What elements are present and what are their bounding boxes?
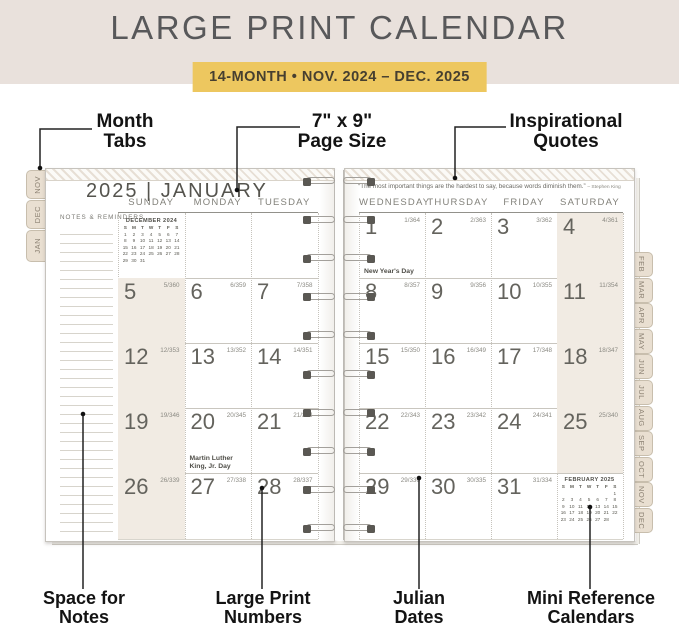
julian-date: 15/350 [401, 347, 420, 354]
date-number: 13 [191, 344, 215, 370]
grid-row-line [359, 539, 623, 540]
julian-date: 12/353 [160, 347, 179, 354]
callout-julian-dates: Julian Dates [349, 589, 489, 627]
calendar-cell: 2121/344 [251, 408, 318, 473]
note-line [60, 288, 113, 289]
note-line [60, 270, 113, 271]
julian-date: 31/334 [533, 477, 552, 484]
note-line [60, 495, 113, 496]
mini-day: 5 [585, 497, 594, 504]
inspirational-quote: “The most important things are the harde… [345, 183, 634, 190]
month-tab-nov: NOV [26, 170, 47, 199]
calendar-cell: 99/356 [425, 278, 491, 343]
note-line [60, 414, 113, 415]
note-line [60, 306, 113, 307]
month-tab-label: MAR [637, 281, 646, 299]
spiral-loop [303, 447, 375, 456]
subtitle-banner: 14-MONTH • NOV. 2024 – DEC. 2025 [192, 62, 487, 92]
mini-day: 12 [585, 504, 594, 511]
spiral-clip [303, 371, 311, 379]
mini-calendar-title: DECEMBER 2024 [121, 218, 182, 224]
note-line [60, 333, 113, 334]
calendar-cell: 55/360 [118, 278, 185, 343]
callout-text-line: Julian [349, 589, 489, 608]
julian-date: 17/348 [533, 347, 552, 354]
mini-day [593, 491, 602, 498]
callout-large-print-numbers: Large Print Numbers [183, 589, 343, 627]
mini-day-letter: S [121, 225, 130, 232]
spiral-clip [303, 486, 311, 494]
mini-day: 6 [164, 232, 173, 239]
mini-day: 13 [164, 238, 173, 245]
julian-date: 28/337 [293, 477, 312, 484]
julian-date: 8/357 [404, 282, 420, 289]
date-number: 28 [257, 474, 281, 500]
callout-text-line: Calendars [506, 608, 676, 627]
mini-day: 25 [576, 517, 585, 524]
date-number: 18 [563, 344, 587, 370]
mini-day: 18 [576, 510, 585, 517]
grid-row-line [118, 539, 318, 540]
month-tab-label: DEC [33, 206, 42, 223]
mini-day [585, 491, 594, 498]
mini-day [164, 258, 173, 265]
mini-day: 22 [121, 251, 130, 258]
calendar-cell: 2020/345Martin Luther King, Jr. Day [185, 408, 252, 473]
spiral-loop [303, 524, 375, 533]
month-tab-label: NOV [33, 176, 42, 194]
day-header-friday: FRIDAY [491, 197, 557, 208]
calendar-cell: 1111/354 [557, 278, 623, 343]
month-tab-label: AUG [637, 409, 646, 427]
holiday-label: Martin Luther King, Jr. Day [190, 455, 246, 470]
callout-inspirational-quotes: Inspirational Quotes [486, 112, 646, 152]
mini-day: 11 [147, 238, 156, 245]
mini-day: 14 [602, 504, 611, 511]
calendar-cell: 1010/355 [491, 278, 557, 343]
julian-date: 2/363 [470, 217, 486, 224]
calendar-cell: 2323/342 [425, 408, 491, 473]
note-line [60, 486, 113, 487]
note-line [60, 522, 113, 523]
date-number: 14 [257, 344, 281, 370]
spiral-clip [367, 409, 375, 417]
day-header-saturday: SATURDAY [557, 197, 623, 208]
julian-date: 7/358 [297, 282, 313, 289]
mini-day: 3 [568, 497, 577, 504]
note-line [60, 243, 113, 244]
spiral-binding-spine [334, 170, 344, 540]
calendar-cell: 66/359 [185, 278, 252, 343]
date-number: 15 [365, 344, 389, 370]
date-number: 7 [257, 279, 269, 305]
julian-date: 10/355 [533, 282, 552, 289]
mini-day-letter: M [130, 225, 139, 232]
calendar-cell: 1818/347 [557, 343, 623, 408]
mini-day: 15 [611, 504, 620, 511]
note-line [60, 279, 113, 280]
julian-date: 24/341 [533, 412, 552, 419]
note-line [60, 234, 113, 235]
date-number: 31 [497, 474, 521, 500]
spiral-clip [303, 178, 311, 186]
note-line [60, 387, 113, 388]
mini-day-letter: S [559, 484, 568, 491]
mini-day [559, 491, 568, 498]
date-number: 23 [431, 409, 455, 435]
mini-day: 24 [568, 517, 577, 524]
mini-day: 31 [138, 258, 147, 265]
mini-day: 3 [138, 232, 147, 239]
date-number: 20 [191, 409, 215, 435]
mini-day [611, 517, 620, 524]
mini-day-letter: S [173, 225, 182, 232]
calendar-cell: 3131/334 [491, 473, 557, 539]
calendar-cell: 1717/348 [491, 343, 557, 408]
calendar-cell [185, 213, 252, 278]
day-header-tuesday: TUESDAY [251, 197, 318, 208]
month-tab-label: MAY [637, 333, 646, 350]
date-number: 12 [124, 344, 148, 370]
mini-day: 8 [611, 497, 620, 504]
mini-day: 1 [611, 491, 620, 498]
mini-day: 10 [568, 504, 577, 511]
mini-day-letter: T [593, 484, 602, 491]
date-number: 5 [124, 279, 136, 305]
month-tab-label: JUN [637, 359, 646, 375]
julian-date: 9/356 [470, 282, 486, 289]
mini-day: 16 [130, 245, 139, 252]
note-line [60, 369, 113, 370]
note-line [60, 504, 113, 505]
product-title: LARGE PRINT CALENDAR [0, 9, 679, 47]
month-tab-label: JUL [637, 385, 646, 400]
date-number: 24 [497, 409, 521, 435]
note-line [60, 441, 113, 442]
left-page: 2025 | JANUARY NOTES & REMINDERS SUNDAYM… [45, 168, 335, 542]
mini-day: 4 [576, 497, 585, 504]
date-number: 2 [431, 214, 443, 240]
note-line [60, 261, 113, 262]
quote-attribution: – Stephen King [587, 185, 620, 190]
mini-day: 21 [173, 245, 182, 252]
callout-text-line: Notes [14, 608, 154, 627]
mini-day: 20 [164, 245, 173, 252]
callout-text-line: Month [65, 112, 185, 132]
mini-day: 28 [173, 251, 182, 258]
callout-text-line: Mini Reference [506, 589, 676, 608]
mini-day-letter: F [602, 484, 611, 491]
mini-calendar-grid: SMTWTFS123456789101112131415161718192021… [121, 225, 182, 265]
date-number: 9 [431, 279, 443, 305]
note-line [60, 297, 113, 298]
julian-date: 29/336 [401, 477, 420, 484]
month-tab-label: APR [637, 307, 646, 324]
callout-space-for-notes: Space for Notes [14, 589, 154, 627]
spiral-clip [303, 525, 311, 533]
note-line [60, 477, 113, 478]
note-line [60, 252, 113, 253]
callout-page-size: 7" x 9" Page Size [282, 112, 402, 152]
note-line [60, 468, 113, 469]
mini-day: 2 [559, 497, 568, 504]
day-header-thursday: THURSDAY [425, 197, 491, 208]
mini-day: 12 [155, 238, 164, 245]
mini-day: 9 [559, 504, 568, 511]
calendar-cell: 2424/341 [491, 408, 557, 473]
mini-calendar-february: FEBRUARY 2025SMTWTFS12345678910111213141… [559, 477, 620, 524]
spiral-clip [367, 448, 375, 456]
note-line [60, 351, 113, 352]
spiral-loop [303, 293, 375, 302]
mini-calendar-december: DECEMBER 2024SMTWTFS12345678910111213141… [121, 218, 182, 265]
date-number: 17 [497, 344, 521, 370]
mini-day-letter: T [576, 484, 585, 491]
julian-date: 19/346 [160, 412, 179, 419]
mini-day [147, 258, 156, 265]
julian-date: 13/352 [227, 347, 246, 354]
day-header-sunday: SUNDAY [118, 197, 185, 208]
julian-date: 14/351 [293, 347, 312, 354]
julian-date: 26/339 [160, 477, 179, 484]
calendar-cell: 44/361 [557, 213, 623, 278]
mini-day: 5 [155, 232, 164, 239]
right-page: “The most important things are the harde… [344, 168, 635, 542]
julian-date: 5/360 [164, 282, 180, 289]
month-tab-jan: JAN [26, 230, 47, 262]
julian-date: 16/349 [467, 347, 486, 354]
calendar-cell: 3030/335 [425, 473, 491, 539]
julian-date: 20/345 [227, 412, 246, 419]
spiral-clip [367, 371, 375, 379]
calendar-cell: 22/363 [425, 213, 491, 278]
mini-day: 19 [155, 245, 164, 252]
spiral-clip [367, 216, 375, 224]
mini-day: 13 [593, 504, 602, 511]
note-line [60, 513, 113, 514]
julian-date: 4/361 [602, 217, 618, 224]
spiral-clip [367, 486, 375, 494]
spiral-clip [303, 448, 311, 456]
mini-day: 7 [173, 232, 182, 239]
julian-date: 25/340 [599, 412, 618, 419]
month-tab-label: JAN [33, 238, 42, 254]
date-number: 3 [497, 214, 509, 240]
spiral-clip [303, 332, 311, 340]
mini-day: 19 [585, 510, 594, 517]
note-line [60, 432, 113, 433]
mini-day: 16 [559, 510, 568, 517]
note-line [60, 423, 113, 424]
mini-day: 1 [121, 232, 130, 239]
calendar-cell: 2626/339 [118, 473, 185, 539]
mini-day: 2 [130, 232, 139, 239]
calendar-cell: 1616/349 [425, 343, 491, 408]
spiral-clip [367, 255, 375, 263]
callout-text-line: Large Print [183, 589, 343, 608]
note-line [60, 315, 113, 316]
julian-date: 23/342 [467, 412, 486, 419]
mini-day: 15 [121, 245, 130, 252]
calendar-cell: 2727/338 [185, 473, 252, 539]
spiral-loop [303, 486, 375, 495]
mini-day-letter: T [138, 225, 147, 232]
julian-date: 30/335 [467, 477, 486, 484]
spiral-clip [367, 293, 375, 301]
month-tab-label: OCT [637, 461, 646, 478]
calendar-cell: 1313/352 [185, 343, 252, 408]
product-image: LARGE PRINT CALENDAR 14-MONTH • NOV. 202… [0, 0, 679, 628]
date-number: 16 [431, 344, 455, 370]
mini-day [173, 258, 182, 265]
mini-day: 24 [138, 251, 147, 258]
spiral-loop [303, 216, 375, 225]
quote-text: “The most important things are the harde… [358, 183, 585, 190]
spiral-clip [367, 525, 375, 533]
mini-day: 26 [155, 251, 164, 258]
note-line [60, 378, 113, 379]
spiral-clip [303, 293, 311, 301]
mini-day [602, 491, 611, 498]
julian-date: 3/362 [536, 217, 552, 224]
mini-day: 6 [593, 497, 602, 504]
mini-day-letter: W [585, 484, 594, 491]
calendar-cell: DECEMBER 2024SMTWTFS12345678910111213141… [118, 213, 185, 278]
mini-day: 20 [593, 510, 602, 517]
mini-day: 7 [602, 497, 611, 504]
julian-date: 1/364 [404, 217, 420, 224]
mini-day: 27 [164, 251, 173, 258]
mini-day: 23 [130, 251, 139, 258]
date-number: 6 [191, 279, 203, 305]
mini-calendar-grid: SMTWTFS123456789101112131415161718192021… [559, 484, 620, 524]
date-number: 27 [191, 474, 215, 500]
mini-day: 10 [138, 238, 147, 245]
callout-text-line: Quotes [486, 132, 646, 152]
julian-date: 18/347 [599, 347, 618, 354]
day-header-wednesday: WEDNESDAY [359, 197, 425, 208]
mini-day: 30 [130, 258, 139, 265]
date-number: 4 [563, 214, 575, 240]
mini-day [155, 258, 164, 265]
date-number: 10 [497, 279, 521, 305]
mini-day: 23 [559, 517, 568, 524]
spiral-loop [303, 409, 375, 418]
callout-text-line: 7" x 9" [282, 112, 402, 132]
month-tab-label: SEP [637, 435, 646, 452]
mini-day [568, 491, 577, 498]
note-line [60, 450, 113, 451]
mini-day: 28 [602, 517, 611, 524]
month-tab-dec: DEC [26, 200, 47, 229]
mini-day: 11 [576, 504, 585, 511]
note-line [60, 396, 113, 397]
month-tab-label: DEC [637, 512, 646, 529]
mini-day: 29 [121, 258, 130, 265]
calendar-cell: 2525/340 [557, 408, 623, 473]
callout-text-line: Tabs [65, 132, 185, 152]
mini-day-letter: S [611, 484, 620, 491]
callout-text-line: Page Size [282, 132, 402, 152]
holiday-label: New Year's Day [364, 268, 420, 276]
mini-day: 22 [611, 510, 620, 517]
date-number: 21 [257, 409, 281, 435]
note-line [60, 531, 113, 532]
callout-text-line: Dates [349, 608, 489, 627]
callout-mini-reference-calendars: Mini Reference Calendars [506, 589, 676, 627]
date-number: 26 [124, 474, 148, 500]
calendar-cell: 1212/353 [118, 343, 185, 408]
julian-date: 22/343 [401, 412, 420, 419]
day-header-monday: MONDAY [185, 197, 252, 208]
note-line [60, 324, 113, 325]
month-tab-label: NOV [637, 486, 646, 504]
month-tab-label: FEB [637, 256, 646, 272]
mini-day-letter: F [164, 225, 173, 232]
spiral-loop [303, 177, 375, 186]
mini-day: 14 [173, 238, 182, 245]
mini-day: 27 [593, 517, 602, 524]
mini-day: 8 [121, 238, 130, 245]
mini-day: 17 [568, 510, 577, 517]
calendar-cell: 1919/346 [118, 408, 185, 473]
mini-day-letter: T [155, 225, 164, 232]
spiral-loop [303, 370, 375, 379]
date-number: 30 [431, 474, 455, 500]
julian-date: 27/338 [227, 477, 246, 484]
mini-day: 21 [602, 510, 611, 517]
mini-day: 4 [147, 232, 156, 239]
julian-date: 6/359 [230, 282, 246, 289]
spiral-clip [303, 255, 311, 263]
date-number: 19 [124, 409, 148, 435]
julian-date: 11/354 [599, 282, 618, 289]
date-number: 11 [563, 279, 586, 305]
spiral-clip [367, 178, 375, 186]
page-top-edge-texture [345, 169, 634, 181]
note-line [60, 342, 113, 343]
callout-text-line: Inspirational [486, 112, 646, 132]
spiral-clip [303, 216, 311, 224]
callout-text-line: Numbers [183, 608, 343, 627]
calendar-cell: FEBRUARY 2025SMTWTFS12345678910111213141… [557, 473, 623, 539]
spiral-loop [303, 331, 375, 340]
note-line [60, 360, 113, 361]
mini-day: 26 [585, 517, 594, 524]
mini-day: 25 [147, 251, 156, 258]
note-line [60, 405, 113, 406]
spiral-clip [367, 332, 375, 340]
spiral-clip [303, 409, 311, 417]
mini-day: 9 [130, 238, 139, 245]
mini-day: 17 [138, 245, 147, 252]
callout-month-tabs: Month Tabs [65, 112, 185, 152]
calendar-cell: 33/362 [491, 213, 557, 278]
mini-day-letter: W [147, 225, 156, 232]
mini-calendar-title: FEBRUARY 2025 [559, 477, 620, 483]
mini-day: 18 [147, 245, 156, 252]
note-line [60, 459, 113, 460]
date-number: 25 [563, 409, 587, 435]
mini-day [576, 491, 585, 498]
grid-col-line [623, 213, 624, 539]
calendar-cell: 2222/343 [359, 408, 425, 473]
mini-day-letter: M [568, 484, 577, 491]
callout-text-line: Space for [14, 589, 154, 608]
spiral-loop [303, 254, 375, 263]
